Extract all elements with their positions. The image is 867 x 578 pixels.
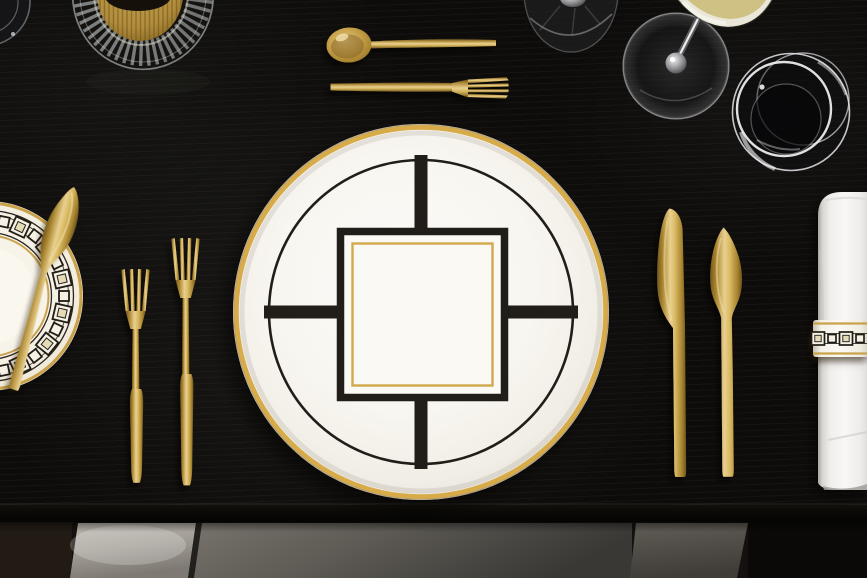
dinner-fork xyxy=(171,238,199,485)
edge-glass-glint xyxy=(11,32,15,36)
under-table-shadow xyxy=(0,522,867,532)
wine-glass-stem-hub xyxy=(666,53,687,74)
dinner-knife xyxy=(657,209,686,478)
edge-glass xyxy=(0,0,30,46)
fork-tine xyxy=(468,83,509,88)
starter-fork xyxy=(121,269,149,483)
dinner-plate xyxy=(233,124,609,500)
fork-root xyxy=(176,280,196,298)
fork-tine xyxy=(468,94,508,99)
below-table-area xyxy=(0,503,867,578)
dessert-fork xyxy=(331,77,509,98)
fork-tine xyxy=(186,238,191,280)
scene-canvas xyxy=(0,0,867,578)
fork-handle xyxy=(180,374,193,485)
fork-tine xyxy=(180,238,185,280)
fork-tine xyxy=(171,238,179,280)
spoon-handle xyxy=(369,39,496,48)
glass-foot xyxy=(524,0,618,52)
table-apron-edge xyxy=(0,505,867,522)
fork-neck xyxy=(182,298,189,374)
fork-tine xyxy=(136,269,141,311)
fork-tine xyxy=(142,269,150,311)
water-tumbler xyxy=(733,53,850,171)
fork-tine xyxy=(121,269,129,311)
water-tumbler-glint xyxy=(759,84,764,89)
fork-root xyxy=(452,80,468,98)
fork-tine xyxy=(192,238,200,280)
crystal-tumbler xyxy=(72,0,214,95)
fork-handle xyxy=(130,389,143,483)
crystal-tumbler-reflection xyxy=(86,69,210,95)
fork-tine xyxy=(468,89,509,92)
fork-tine xyxy=(468,77,509,83)
fork-tine xyxy=(130,269,135,311)
napkin-ring xyxy=(812,320,867,366)
dinner-knife-body xyxy=(657,209,686,478)
table-edge-highlight xyxy=(0,503,867,505)
fork-neck xyxy=(132,329,139,389)
table-scene xyxy=(0,0,867,578)
fish-knife-body xyxy=(710,228,742,477)
fish-knife xyxy=(710,228,742,477)
fork-handle xyxy=(331,83,453,92)
dinner-plate-square xyxy=(341,232,505,398)
fork-root xyxy=(126,311,146,329)
dessert-spoon xyxy=(325,26,496,64)
